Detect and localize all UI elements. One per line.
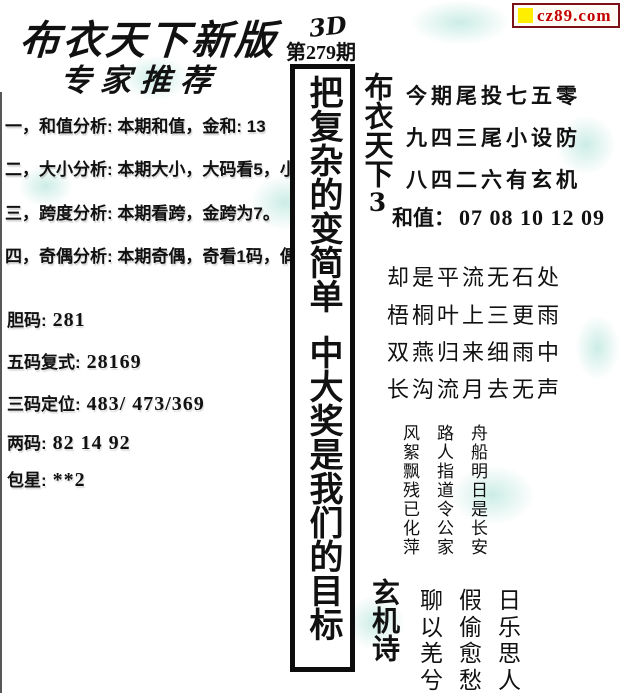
pick-danma: 胆码:281 xyxy=(7,306,86,332)
mystery-row-3: 羌愈思 xyxy=(420,641,537,668)
pick-wuma-value: 28169 xyxy=(87,351,142,373)
slogan-part-1: 把复杂的变简单 xyxy=(303,75,343,313)
pick-liangma: 两码:82 14 92 xyxy=(7,429,131,455)
watermark-blob xyxy=(575,315,620,380)
scan-edge-artifact xyxy=(0,92,2,693)
slogan-text: 把复杂的变简单中大奖是我们的目标 xyxy=(295,69,350,667)
pick-sanma-value: 483/ 473/369 xyxy=(87,393,205,415)
sum-values: 和值：07 08 10 12 09 xyxy=(392,202,605,232)
mystery-poem-title: 玄机诗 xyxy=(364,578,404,662)
pick-baoxing-value: **2 xyxy=(53,469,86,491)
vertical-poem-col-3: 舟船明日是长安 xyxy=(467,424,487,557)
pick-sanma: 三码定位:483/ 473/369 xyxy=(7,390,205,416)
page-subtitle: 专家推荐 xyxy=(46,55,234,100)
mystery-poem-rows: 聊假日 以偷乐 羌愈思 兮愁人 xyxy=(420,588,537,693)
pick-liangma-value: 82 14 92 xyxy=(53,432,131,454)
vertical-poem-col-1: 风絮飘残已化萍 xyxy=(399,424,419,557)
vertical-poem-col-2: 路人指道令公家 xyxy=(433,424,453,557)
logo-text: cz89.com xyxy=(537,7,612,24)
logo-square-icon xyxy=(518,8,533,23)
watermark-blob xyxy=(410,0,510,45)
site-logo: cz89.com xyxy=(512,3,620,28)
lottery-chart-page: cz89.com 布衣天下新版 专家推荐 一，和值分析: 本期和值，金和: 13… xyxy=(0,0,621,693)
tip-line-2: 九四三尾小设防 xyxy=(406,122,581,152)
pick-danma-value: 281 xyxy=(53,309,86,331)
pick-baoxing-label: 包星: xyxy=(7,471,47,490)
pick-wuma-label: 五码复式: xyxy=(7,353,81,372)
slogan-part-2: 中大奖是我们的目标 xyxy=(303,335,343,641)
tip-line-3: 八四二六有玄机 xyxy=(406,164,581,194)
analysis-line-1: 一，和值分析: 本期和值，金和: 13 xyxy=(5,112,266,137)
brand-vertical-title: 布衣天下3 xyxy=(356,72,398,217)
mystery-row-4: 兮愁人 xyxy=(420,668,537,693)
sum-value: 07 08 10 12 09 xyxy=(459,205,605,230)
tip-line-1: 今期尾投七五零 xyxy=(406,80,581,110)
vertical-poem: 风絮飘残已化萍 路人指道令公家 舟船明日是长安 xyxy=(399,424,487,557)
pick-wuma: 五码复式:28169 xyxy=(7,348,142,374)
mystery-row-1: 聊假日 xyxy=(420,588,537,615)
pick-liangma-label: 两码: xyxy=(7,434,47,453)
pick-sanma-label: 三码定位: xyxy=(7,395,81,414)
analysis-line-3: 三，跨度分析: 本期看跨，金跨为7。 xyxy=(5,199,280,224)
sum-label: 和值： xyxy=(392,206,455,230)
slogan-box: 把复杂的变简单中大奖是我们的目标 xyxy=(290,64,355,672)
poem-line-4: 长沟流月去无声 xyxy=(387,372,562,404)
brand-title-digit: 3 xyxy=(363,188,392,217)
poem-line-3: 双燕归来细雨中 xyxy=(387,335,562,367)
poem-line-1: 却是平流无石处 xyxy=(387,260,562,292)
brand-title-text: 布衣天下 xyxy=(360,72,394,188)
mystery-row-2: 以偷乐 xyxy=(420,615,537,642)
poem-line-2: 梧桐叶上三更雨 xyxy=(387,298,562,330)
pick-baoxing: 包星:**2 xyxy=(7,466,86,492)
pick-danma-label: 胆码: xyxy=(7,311,47,330)
issue-number: 第279期 xyxy=(286,36,356,65)
